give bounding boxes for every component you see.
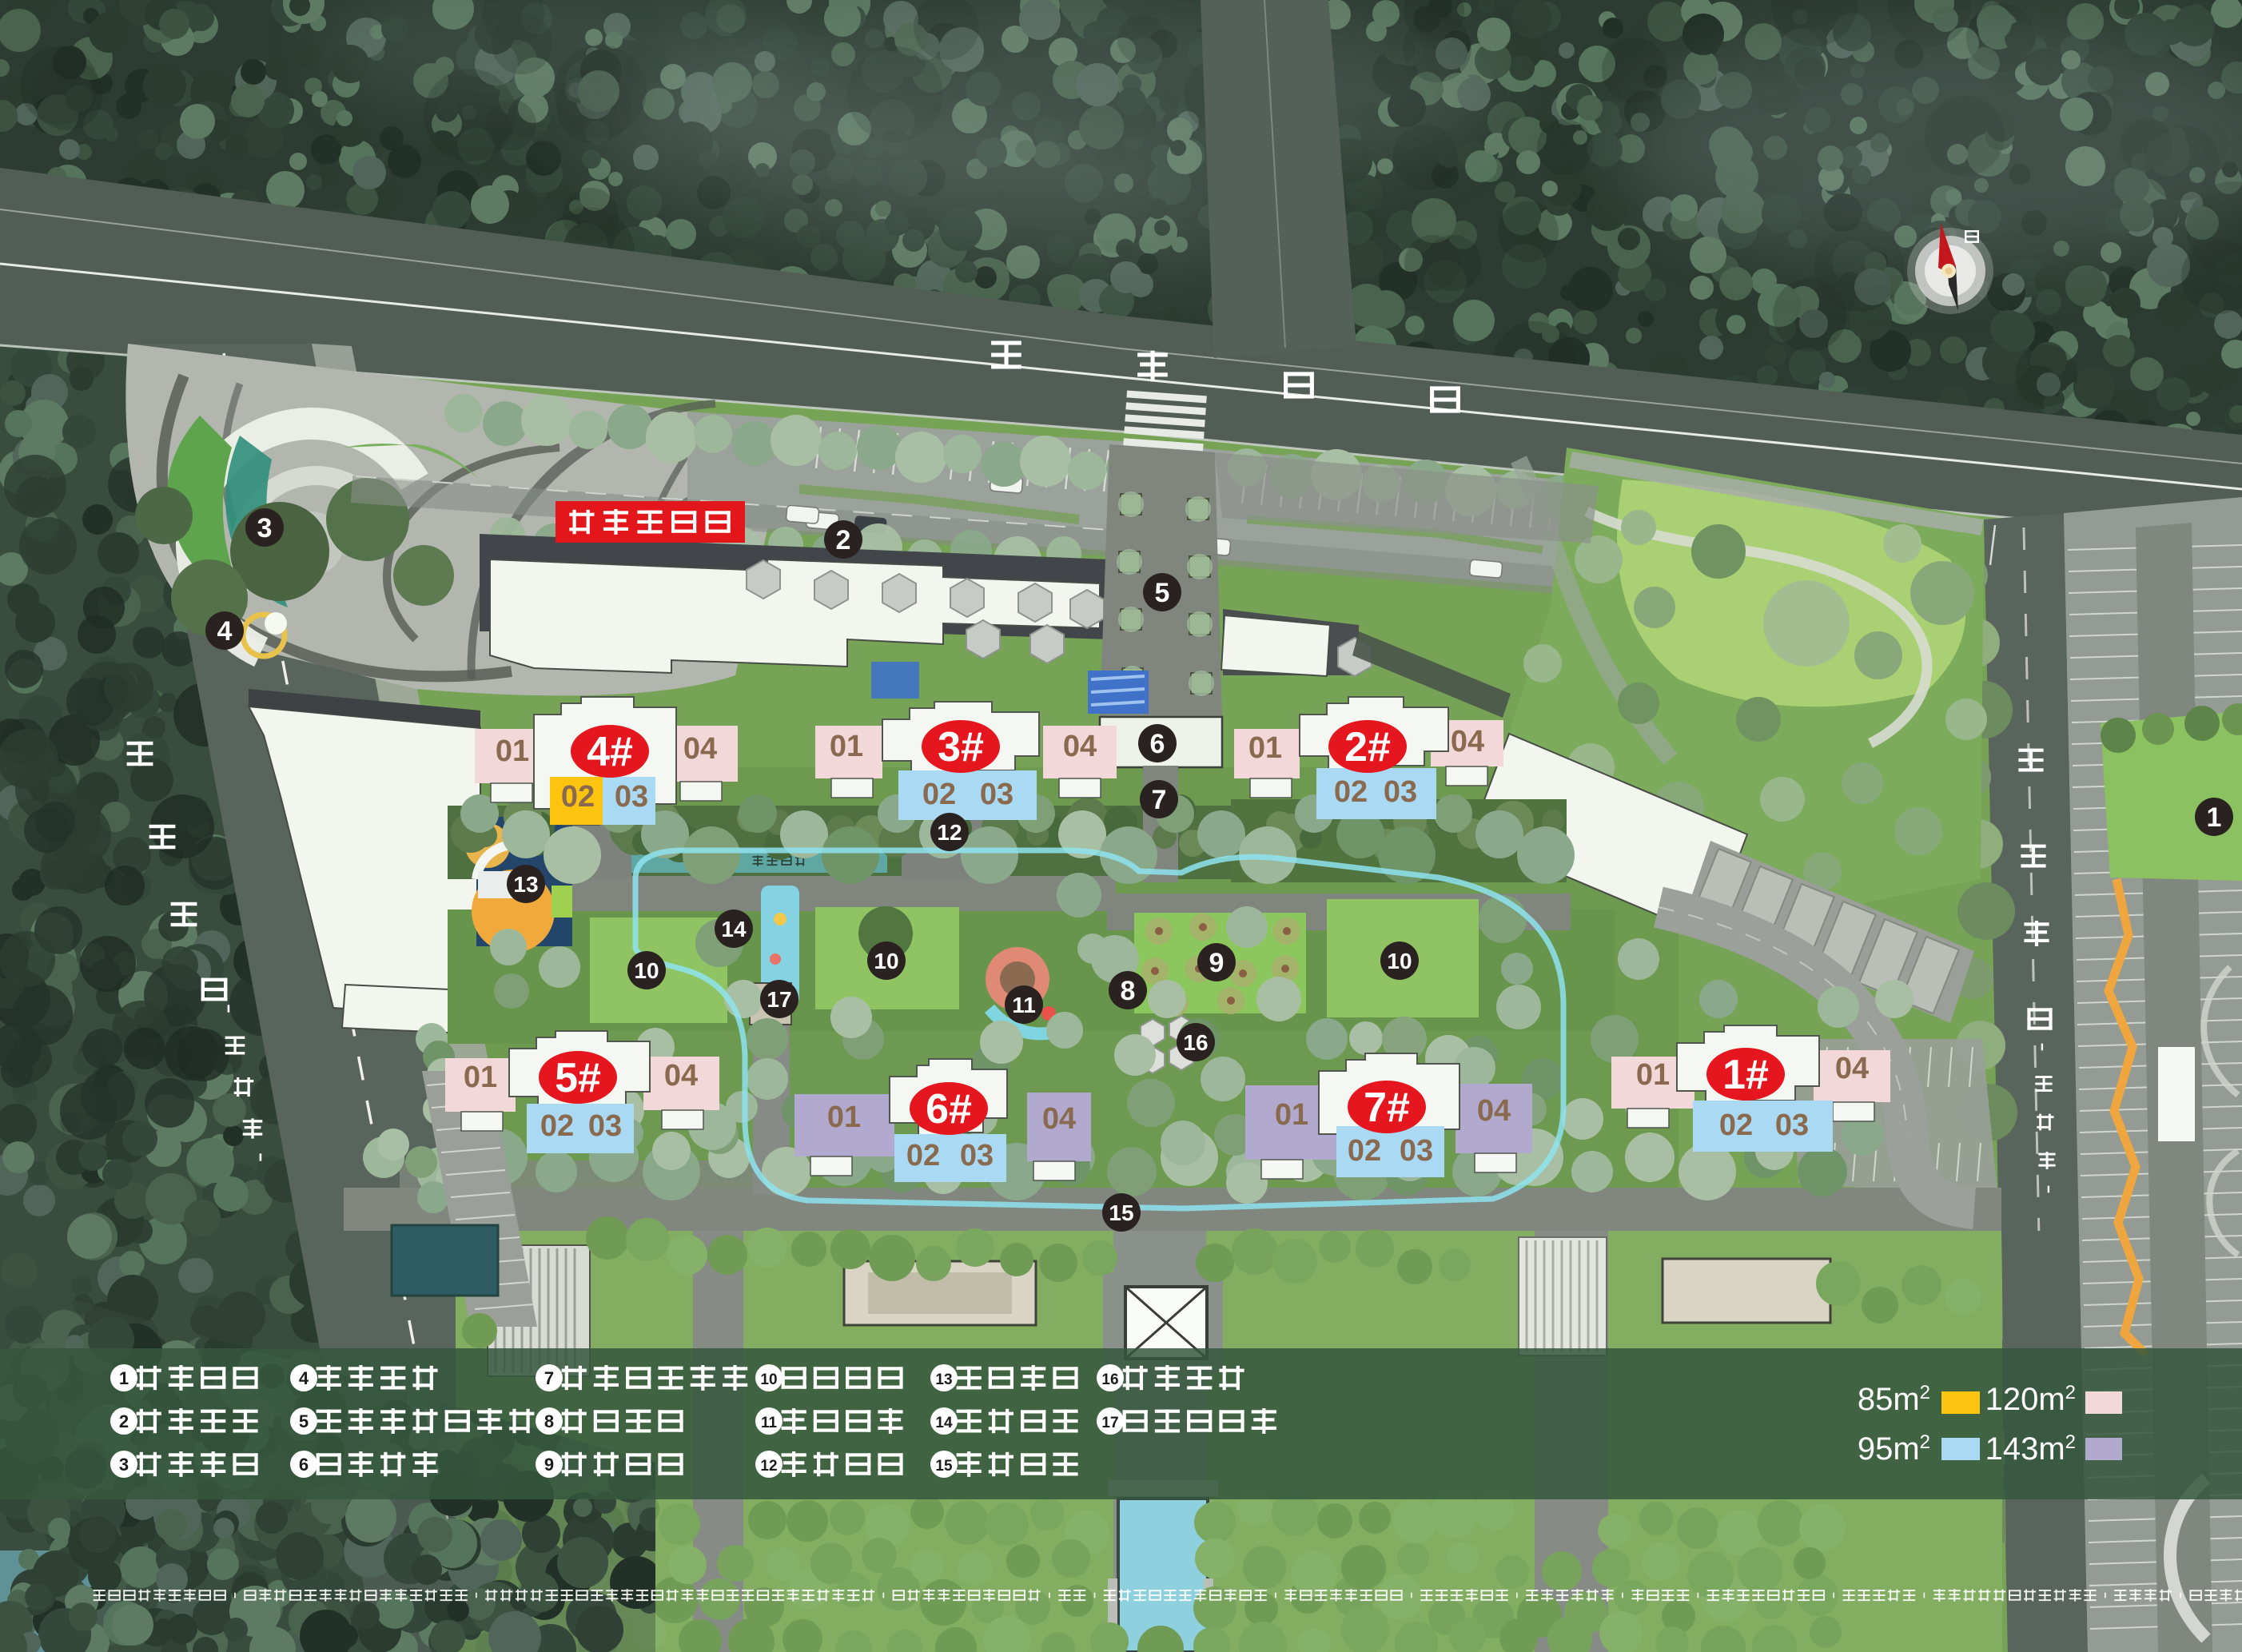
svg-text:6#: 6# (926, 1086, 972, 1133)
svg-text:15: 15 (1109, 1200, 1133, 1225)
svg-text:1: 1 (2207, 802, 2222, 833)
svg-text:9: 9 (1209, 948, 1225, 978)
svg-text:01: 01 (827, 1101, 861, 1134)
svg-text:04: 04 (1063, 730, 1097, 763)
svg-text:16: 16 (1101, 1371, 1118, 1388)
svg-text:1: 1 (119, 1368, 129, 1388)
svg-text:02: 02 (561, 780, 595, 814)
svg-text:03: 03 (615, 780, 648, 814)
svg-text:17: 17 (767, 987, 791, 1012)
svg-text:120m2: 120m2 (1985, 1382, 2076, 1417)
svg-text:03: 03 (1384, 775, 1417, 809)
svg-text:6: 6 (299, 1455, 309, 1475)
svg-text:04: 04 (1451, 725, 1484, 758)
svg-text:10: 10 (760, 1371, 777, 1388)
svg-text:9: 9 (544, 1455, 554, 1475)
svg-text:02: 02 (540, 1109, 574, 1143)
svg-text:4: 4 (217, 616, 233, 647)
svg-text:85m2: 85m2 (1858, 1382, 1930, 1417)
svg-text:8: 8 (1121, 976, 1136, 1006)
svg-text:3#: 3# (938, 724, 984, 770)
svg-text:3: 3 (119, 1455, 129, 1475)
svg-text:01: 01 (464, 1061, 497, 1094)
svg-text:04: 04 (1835, 1052, 1869, 1085)
svg-text:01: 01 (1275, 1098, 1308, 1132)
svg-text:2: 2 (836, 525, 851, 555)
svg-text:12: 12 (760, 1458, 777, 1475)
svg-text:14: 14 (935, 1415, 953, 1431)
svg-text:04: 04 (1042, 1102, 1076, 1136)
svg-text:95m2: 95m2 (1858, 1431, 1930, 1467)
svg-text:04: 04 (683, 732, 717, 766)
svg-text:12: 12 (937, 820, 962, 845)
svg-text:02: 02 (1334, 775, 1368, 809)
svg-text:16: 16 (1183, 1030, 1208, 1055)
svg-text:11: 11 (761, 1415, 778, 1431)
svg-text:14: 14 (721, 917, 747, 941)
svg-text:03: 03 (1400, 1134, 1433, 1168)
svg-text:03: 03 (588, 1109, 622, 1143)
svg-text:5: 5 (299, 1411, 309, 1431)
svg-text:13: 13 (935, 1371, 952, 1388)
svg-text:17: 17 (1101, 1415, 1118, 1431)
svg-text:04: 04 (664, 1059, 698, 1093)
svg-text:5#: 5# (555, 1055, 601, 1101)
svg-text:02: 02 (922, 778, 956, 811)
svg-text:143m2: 143m2 (1985, 1431, 2076, 1467)
svg-text:5: 5 (1155, 578, 1170, 608)
svg-text:01: 01 (830, 730, 863, 763)
svg-text:01: 01 (496, 734, 529, 768)
svg-text:03: 03 (1775, 1109, 1809, 1142)
svg-text:10: 10 (1387, 949, 1412, 973)
svg-text:15: 15 (935, 1458, 953, 1475)
svg-text:03: 03 (980, 778, 1013, 811)
svg-text:03: 03 (960, 1139, 994, 1172)
svg-text:6: 6 (1150, 729, 1165, 759)
svg-text:04: 04 (1477, 1094, 1511, 1128)
svg-text:10: 10 (874, 949, 898, 973)
svg-text:8: 8 (544, 1411, 554, 1431)
svg-text:4: 4 (299, 1368, 309, 1388)
svg-text:01: 01 (1248, 731, 1282, 765)
svg-text:2: 2 (119, 1411, 129, 1431)
svg-text:7: 7 (544, 1368, 554, 1388)
svg-text:7: 7 (1152, 785, 1167, 815)
svg-text:02: 02 (1348, 1134, 1381, 1168)
svg-text:1#: 1# (1722, 1052, 1769, 1098)
svg-text:13: 13 (513, 872, 538, 897)
svg-text:02: 02 (906, 1139, 940, 1172)
svg-text:10: 10 (634, 958, 659, 983)
svg-text:7#: 7# (1364, 1085, 1410, 1131)
svg-text:01: 01 (1636, 1058, 1670, 1092)
svg-text:02: 02 (1719, 1109, 1753, 1142)
svg-text:4#: 4# (587, 729, 633, 775)
svg-text:2#: 2# (1344, 724, 1391, 770)
svg-text:11: 11 (1012, 993, 1036, 1017)
svg-text:3: 3 (257, 513, 273, 543)
